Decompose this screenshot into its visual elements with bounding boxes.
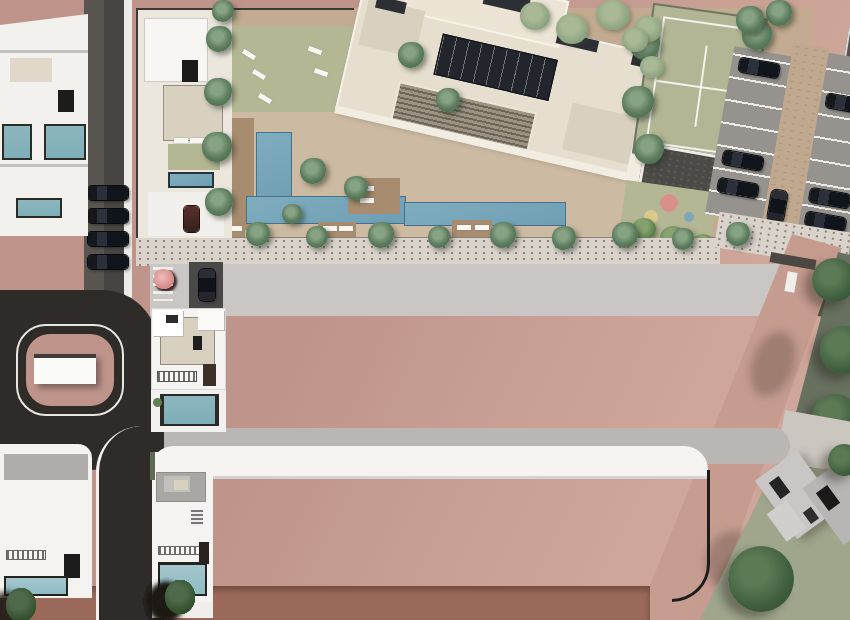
tree [520, 2, 550, 30]
parked-car [88, 209, 128, 223]
row-corner-curb [672, 470, 710, 602]
street-parked-cars [88, 186, 128, 269]
central-island [26, 334, 114, 406]
roof-volume [153, 310, 183, 336]
shrub [153, 398, 162, 407]
private-pool [2, 124, 32, 160]
pool-terrace [151, 390, 226, 432]
roof-hatch [58, 90, 74, 112]
tree [165, 580, 195, 614]
green-divider-post [150, 452, 155, 480]
roof-hatch [64, 554, 80, 578]
tree [812, 258, 850, 302]
terrace-railing [158, 546, 200, 555]
stairs [191, 510, 203, 526]
large-tree [728, 546, 794, 612]
townhouse-unit [150, 262, 227, 432]
tree [640, 56, 664, 78]
private-pool [16, 198, 62, 218]
west-villa-block [0, 14, 88, 236]
private-pool [160, 394, 219, 426]
parked-car [88, 186, 128, 200]
tree [596, 0, 630, 30]
townhouse-roof [151, 308, 226, 390]
roof-edge [0, 50, 88, 53]
skylight [166, 315, 178, 323]
parked-car [199, 269, 215, 301]
terrace-railing [157, 371, 197, 382]
roof-hatch [199, 542, 209, 564]
terrace-tiles [174, 480, 188, 490]
terrace-railing [6, 550, 46, 560]
private-pool [44, 124, 86, 160]
roof [4, 454, 88, 480]
flowering-tree [154, 269, 174, 289]
terrace-tiles [10, 58, 52, 82]
parked-car [88, 232, 128, 246]
roof-edge [0, 164, 88, 167]
curb-band [150, 446, 708, 476]
roof-hatch [193, 336, 202, 350]
aerial-render [0, 0, 850, 620]
tree [622, 28, 648, 52]
tree [6, 588, 36, 620]
southwest-villa [0, 444, 92, 598]
island-building [34, 354, 96, 384]
tree [556, 14, 588, 44]
roof-volume [198, 310, 224, 330]
wood-panel [203, 364, 216, 386]
parked-car [88, 255, 128, 269]
